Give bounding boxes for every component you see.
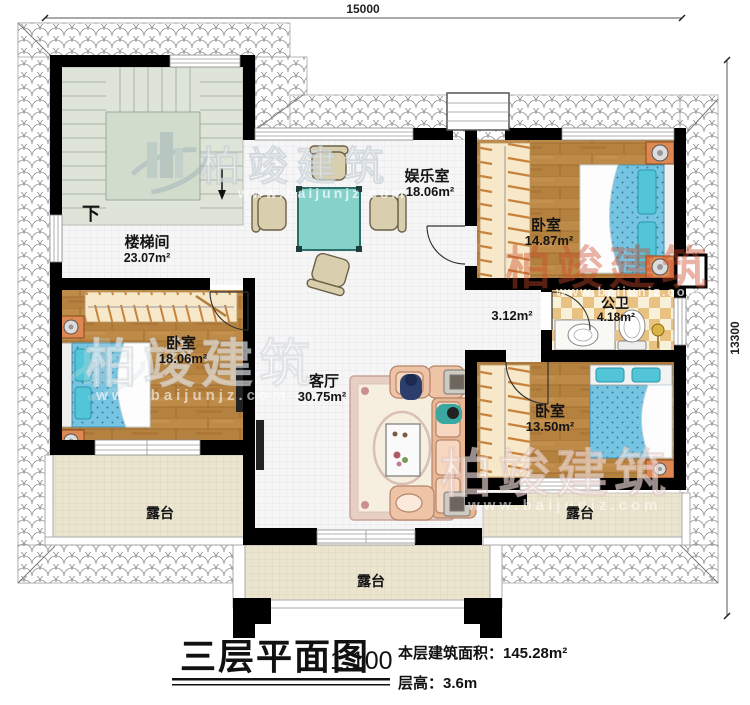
living-room-area: 30.75m² [298, 389, 347, 404]
stairwell-label: 楼梯间 [124, 233, 169, 251]
watermark-url: www.baijunjz.com [467, 497, 661, 514]
terrace-right-label: 露台 [566, 505, 594, 521]
watermark-brand: 柏竣建筑 [440, 446, 672, 504]
title-underline-2 [172, 684, 390, 686]
title-block: 三层平面图 1:100 本层建筑面积：145.28m² 层高：3.6m [172, 636, 567, 692]
watermark-url: www.baijunjz.com [95, 387, 289, 404]
living-room-label: 客厅 [308, 372, 339, 390]
bedroom-top-right-label: 卧室 [531, 216, 561, 234]
floorplan-canvas: 柏竣建筑 www.baijunjz.com 柏竣建筑 www.baijunjz.… [0, 0, 750, 705]
bathroom-area: 4.18m² [597, 310, 635, 324]
entertainment-label: 娱乐室 [404, 167, 449, 185]
tv-living [256, 420, 264, 470]
floor-height-text: 层高：3.6m [398, 674, 477, 692]
dimension-height: 13300 [728, 321, 742, 355]
terrace-left-label: 露台 [146, 505, 174, 521]
bedroom-bottom-right-area: 13.50m² [526, 419, 575, 434]
stair-down-label: 下 [82, 204, 100, 224]
sliding-door [317, 530, 415, 543]
bedroom-bottom-right-label: 卧室 [535, 402, 565, 420]
floor-area-text: 本层建筑面积：145.28m² [398, 644, 567, 662]
window [562, 128, 674, 140]
window [674, 298, 686, 345]
terrace-left-floor [45, 455, 248, 545]
window [170, 55, 240, 67]
sliding-window [95, 440, 200, 455]
title-underline [172, 678, 390, 681]
drawing-scale: 1:100 [330, 647, 393, 675]
coffee-table [386, 424, 420, 476]
corridor-area: 3.12m² [491, 308, 533, 323]
stairwell-area: 23.07m² [124, 251, 171, 265]
bedroom-top-right-area: 14.87m² [525, 233, 574, 248]
bathroom-label: 公卫 [601, 295, 629, 311]
bed [590, 365, 672, 458]
window-strip [255, 128, 413, 140]
terrace-bottom-label: 露台 [357, 573, 385, 589]
entertainment-area: 18.06m² [406, 184, 455, 199]
watermark-url: www.baijunjz.com [237, 185, 407, 201]
bay-window [447, 93, 509, 130]
floorplan-drawing: 柏竣建筑 www.baijunjz.com 柏竣建筑 www.baijunjz.… [0, 0, 750, 705]
window [50, 215, 62, 262]
dimension-width: 15000 [346, 2, 380, 16]
sink [568, 324, 598, 346]
terrace-pillar-left [233, 598, 271, 638]
bedroom-left-label: 卧室 [166, 334, 196, 352]
bedroom-left-area: 18.06m² [159, 351, 208, 366]
terrace-pillar-right [464, 598, 502, 638]
watermark-brand: 柏竣建筑 [200, 145, 392, 189]
